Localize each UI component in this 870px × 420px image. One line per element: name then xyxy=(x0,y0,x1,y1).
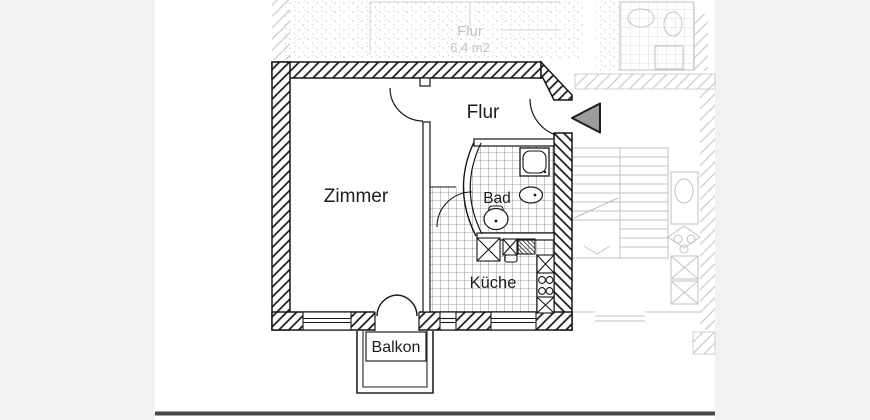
ghost-wall xyxy=(272,0,290,60)
hallway-tiles xyxy=(430,187,474,312)
cabinet-icon xyxy=(537,297,554,313)
stove-icon xyxy=(537,273,554,297)
partition-stub xyxy=(420,78,430,86)
partition-wall xyxy=(423,122,430,312)
floor-plan-scan: Flur 6,4 m2 xyxy=(0,0,870,420)
floor-plan-svg: Flur 6,4 m2 xyxy=(0,0,870,420)
window xyxy=(491,312,536,330)
room-label-zimmer: Zimmer xyxy=(324,186,389,207)
washbasin-icon xyxy=(520,187,543,203)
room-label-balkon: Balkon xyxy=(372,339,421,356)
cabinet-icon xyxy=(477,238,500,261)
ghost-wall xyxy=(575,74,715,89)
left-wall xyxy=(272,62,290,330)
ghost-wall xyxy=(693,332,715,354)
window xyxy=(440,312,456,330)
ghost-speckle-texture xyxy=(283,0,583,58)
ghost-label-room: Flur xyxy=(457,23,483,40)
room-label-flur: Flur xyxy=(467,102,500,123)
shower-icon xyxy=(520,148,549,176)
top-wall xyxy=(272,62,541,78)
ghost-wall xyxy=(700,89,715,330)
bad-top-wall xyxy=(474,139,554,146)
scan-bottom-edge xyxy=(155,412,715,416)
ghost-label-area: 6,4 m2 xyxy=(450,40,490,55)
room-label-bad: Bad xyxy=(483,190,511,207)
window xyxy=(303,312,351,330)
ghost-speckle-texture xyxy=(596,0,620,74)
room-label-kueche: Küche xyxy=(470,274,517,292)
right-wall xyxy=(554,133,572,330)
cabinet-icon xyxy=(537,255,554,273)
